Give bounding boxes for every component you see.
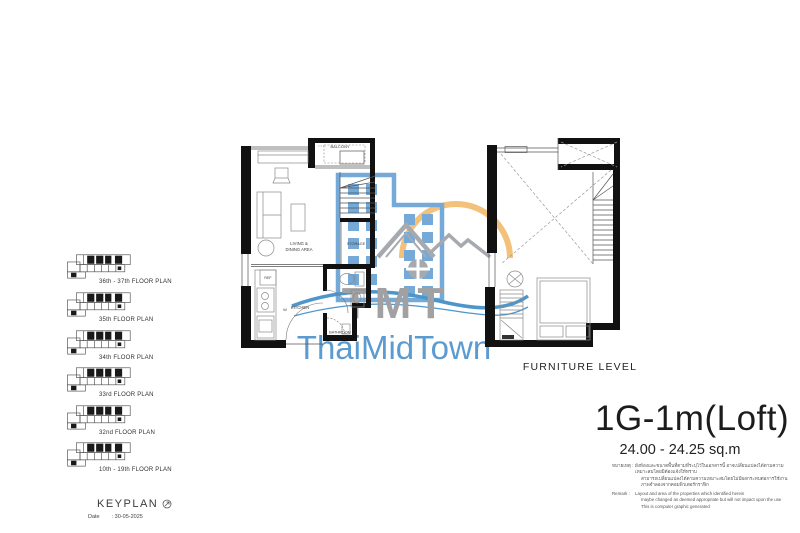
floor-plan-label: 36th - 37th FLOOR PLAN	[99, 279, 200, 285]
ref-label: REF	[264, 276, 272, 280]
remark-en-line: maybe changed as deemed appropriate but …	[635, 497, 796, 504]
keyplan-mini-diagram	[61, 441, 151, 467]
living-label-line2: DINING AREA	[286, 247, 313, 252]
keyplan-item: 32nd FLOOR PLAN	[55, 404, 200, 436]
unit-area: 24.00 - 24.25 sq.m	[595, 442, 765, 458]
storage-label: STORAGE	[347, 242, 366, 246]
keyplan-item: 35th FLOOR PLAN	[55, 291, 200, 323]
remark-thai-line: ผังห้องและขนาดพื้นที่ตามที่ระบุไว้ในเอกส…	[635, 463, 796, 476]
keyplan-item: 36th - 37th FLOOR PLAN	[55, 253, 200, 285]
furniture-level-label: FURNITURE LEVEL	[500, 361, 660, 373]
keyplan-mini-diagram	[61, 253, 151, 279]
keyplan-title-row: KEYPLAN	[97, 498, 172, 510]
floor-plan-label: 10th - 19th FLOOR PLAN	[99, 467, 200, 473]
main-floor-plan: BALCONY LIVING & DINING AREA STORAGE REF…	[228, 118, 403, 373]
bathroom-label: BATHROOM	[329, 331, 351, 335]
unit-title: 1G-1m(Loft)	[595, 399, 765, 439]
loft-void-cross	[501, 142, 617, 264]
remark-en-label: Remark :	[612, 491, 635, 511]
remark-en-line: This is computer graphic generated	[635, 504, 796, 511]
remark-thai-row: หมายเหตุ : ผังห้องและขนาดพื้นที่ตามที่ระ…	[612, 463, 796, 489]
remark-en-line: Layout and area of the properties which …	[635, 491, 796, 498]
floor-plan-label: 34th FLOOR PLAN	[99, 355, 200, 361]
remark-thai-line: ภาพจำลองจากคอมพิวเตอร์กราฟิก	[635, 482, 796, 488]
unit-info: 1G-1m(Loft) 24.00 - 24.25 sq.m	[595, 399, 765, 458]
loft-thin-lines	[489, 138, 613, 287]
keyplan-item: 34th FLOOR PLAN	[55, 329, 200, 361]
remark-block: หมายเหตุ : ผังห้องและขนาดพื้นที่ตามที่ระ…	[612, 463, 796, 513]
floor-plan-label: 35th FLOOR PLAN	[99, 317, 200, 323]
keyplan-date-value: : 30-05-2025	[112, 514, 143, 520]
keyplan-date-label: Date	[88, 514, 100, 520]
keyplan-item: 10th - 19th FLOOR PLAN	[55, 441, 200, 473]
keyplan-item: 33rd FLOOR PLAN	[55, 366, 200, 398]
keyplan-mini-diagram	[61, 366, 151, 392]
loft-walls	[485, 138, 620, 347]
floor-plan-label: 32nd FLOOR PLAN	[99, 430, 200, 436]
balcony-label: BALCONY	[330, 144, 349, 149]
keyplan-date-row: Date : 30-05-2025	[88, 514, 143, 520]
keyplan-mini-diagram	[61, 291, 151, 317]
keyplan-mini-diagram	[61, 329, 151, 355]
remark-thai-label: หมายเหตุ :	[612, 463, 635, 489]
north-compass-icon	[162, 499, 172, 509]
washer-label: W	[283, 307, 287, 312]
living-label-line1: LIVING &	[290, 241, 308, 246]
plan-room-labels: BALCONY LIVING & DINING AREA STORAGE REF…	[264, 144, 365, 335]
kitchen-label: KITCHEN	[291, 305, 309, 310]
keyplan-mini-diagram	[61, 404, 151, 430]
furniture-level-plan	[483, 112, 633, 352]
keyplan-title: KEYPLAN	[97, 498, 158, 510]
loft-furniture	[500, 271, 590, 340]
floor-plan-label: 33rd FLOOR PLAN	[99, 392, 200, 398]
floorplan-page: TMT ThaiMidTown	[0, 0, 800, 533]
remark-en-row: Remark : Layout and area of the properti…	[612, 491, 796, 511]
